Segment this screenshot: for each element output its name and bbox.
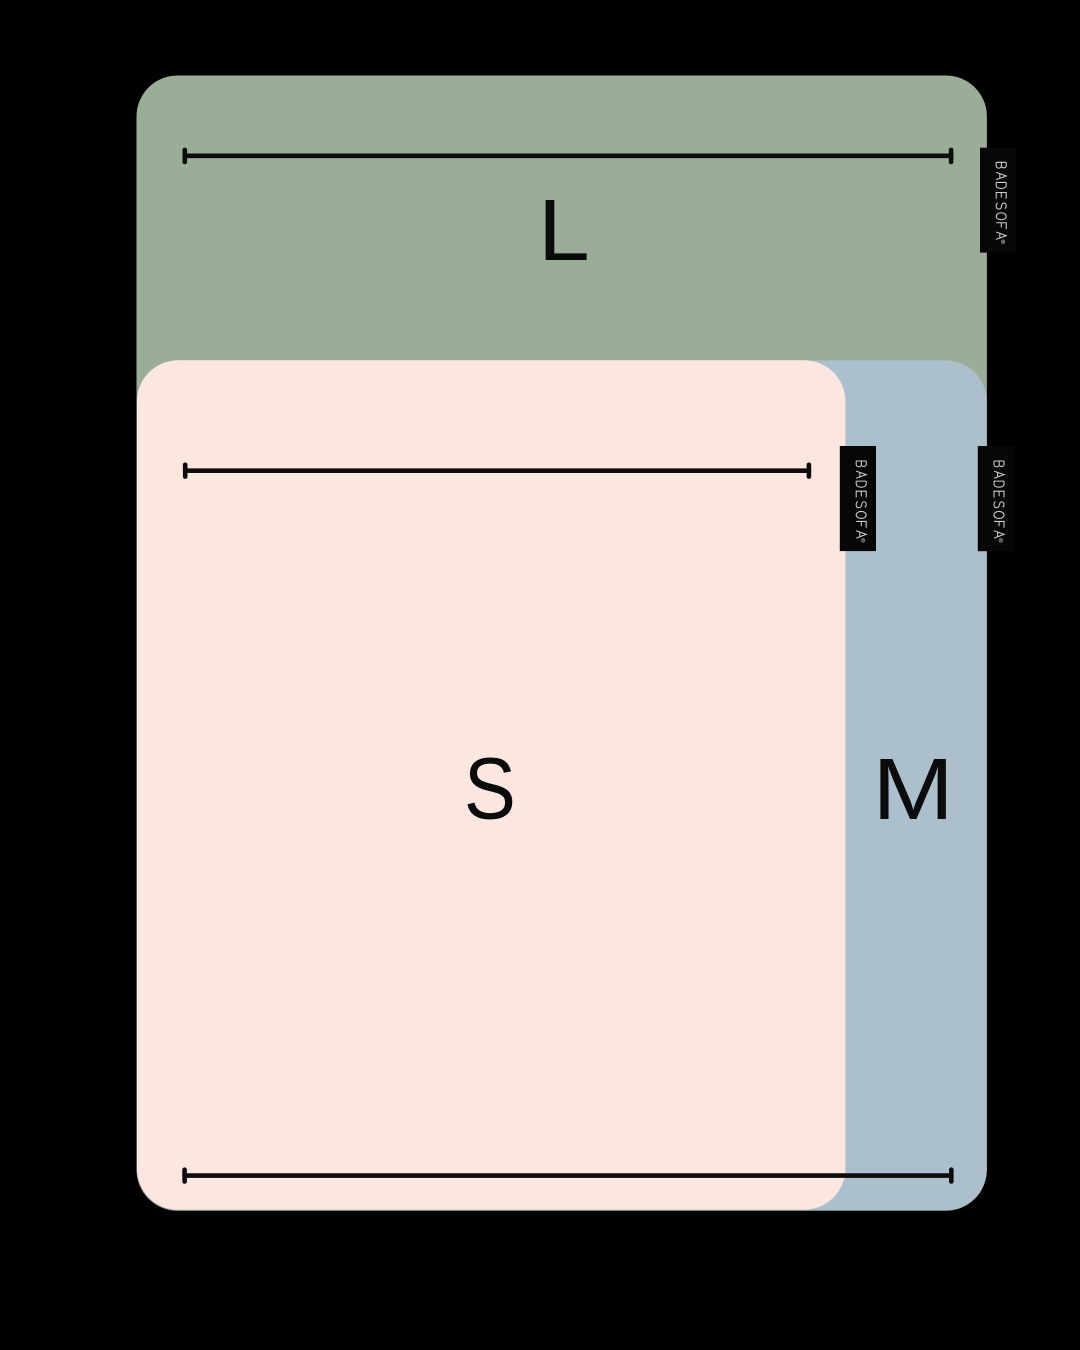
svg-text:S: S — [464, 740, 516, 837]
svg-text:M: M — [872, 741, 954, 838]
svg-text:L: L — [538, 182, 590, 279]
